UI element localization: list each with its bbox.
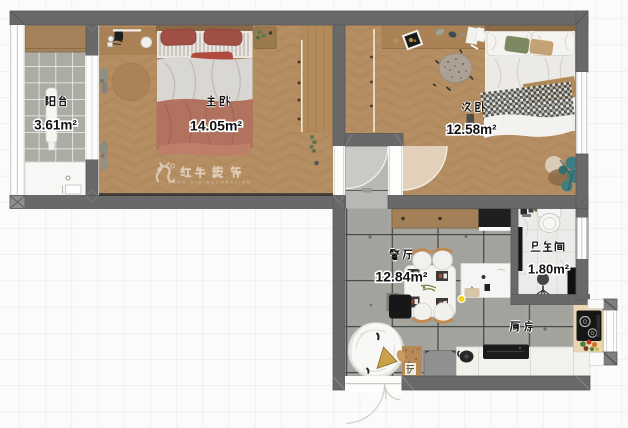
- svg-text:12.84m²: 12.84m²: [375, 269, 427, 285]
- svg-text:14.05m²: 14.05m²: [190, 118, 242, 134]
- svg-text:HONG NIU DECORATION: HONG NIU DECORATION: [168, 181, 252, 185]
- svg-text:1.80m²: 1.80m²: [528, 262, 570, 277]
- svg-text:12.58m²: 12.58m²: [446, 122, 497, 137]
- svg-text:3.61m²: 3.61m²: [34, 118, 77, 133]
